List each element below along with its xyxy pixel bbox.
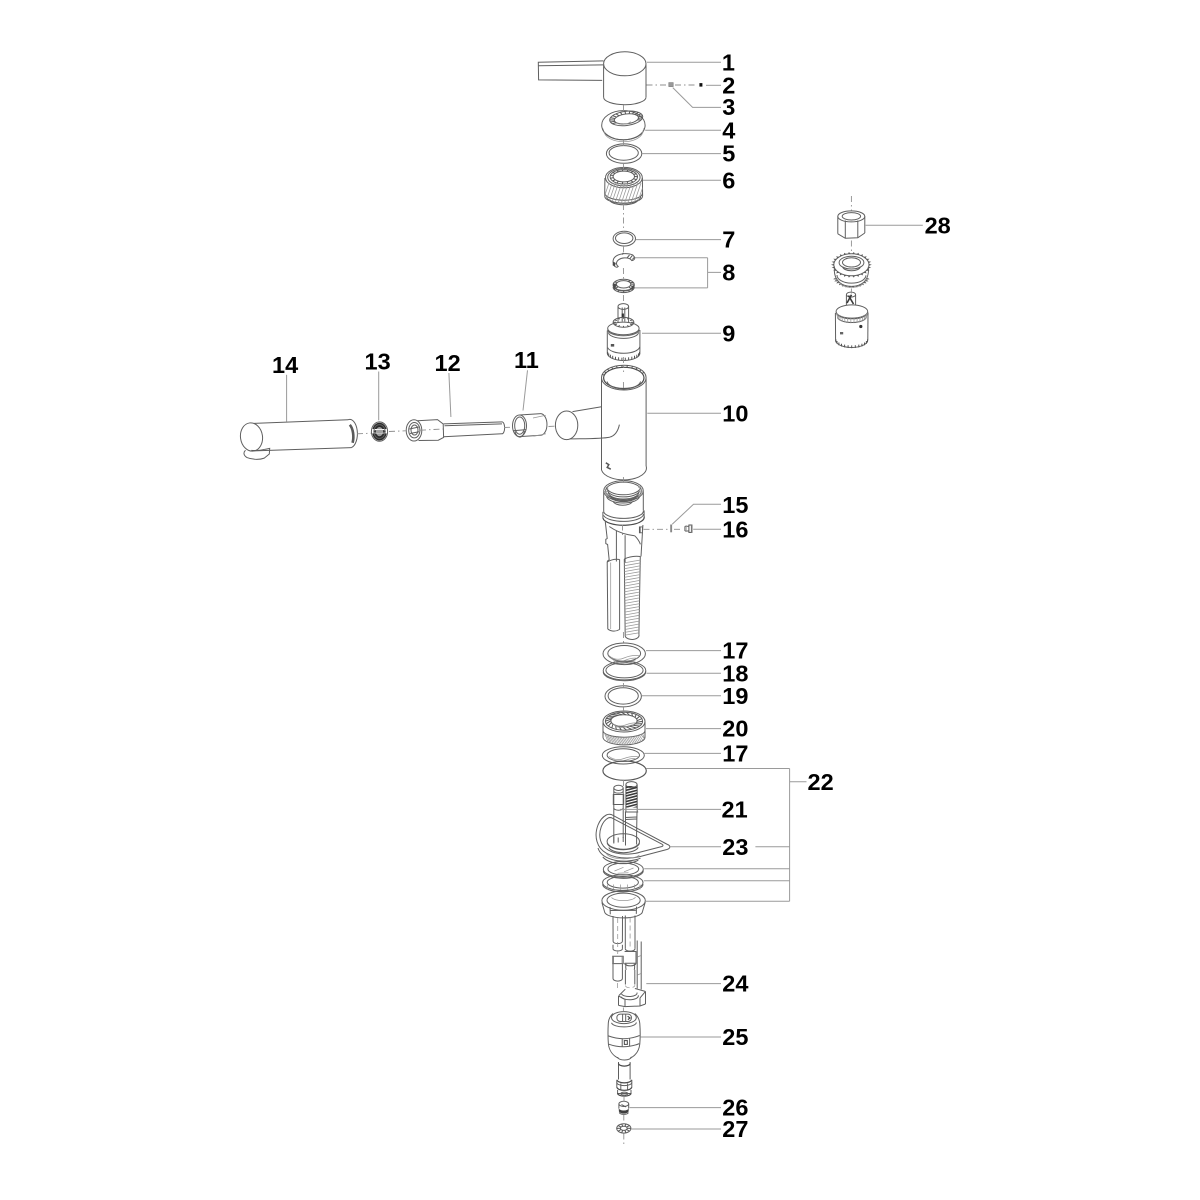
svg-text:23: 23: [722, 834, 748, 860]
svg-text:28: 28: [925, 213, 951, 239]
svg-text:21: 21: [722, 797, 748, 823]
svg-text:27: 27: [722, 1116, 748, 1142]
svg-text:5: 5: [722, 141, 735, 167]
svg-text:9: 9: [722, 320, 735, 346]
svg-text:3: 3: [722, 94, 735, 120]
svg-text:12: 12: [435, 350, 461, 376]
svg-text:19: 19: [722, 683, 748, 709]
svg-text:14: 14: [272, 352, 298, 378]
svg-text:6: 6: [722, 167, 735, 193]
svg-text:24: 24: [722, 971, 748, 997]
svg-text:7: 7: [722, 227, 735, 253]
svg-text:22: 22: [808, 769, 834, 795]
svg-text:11: 11: [514, 347, 539, 373]
svg-text:25: 25: [722, 1024, 748, 1050]
svg-text:13: 13: [365, 348, 391, 374]
svg-text:8: 8: [722, 260, 735, 286]
svg-text:20: 20: [722, 716, 748, 742]
svg-text:10: 10: [722, 400, 748, 426]
svg-text:4: 4: [722, 117, 735, 143]
svg-text:15: 15: [722, 492, 748, 518]
svg-text:16: 16: [722, 517, 748, 543]
svg-text:17: 17: [722, 741, 748, 767]
